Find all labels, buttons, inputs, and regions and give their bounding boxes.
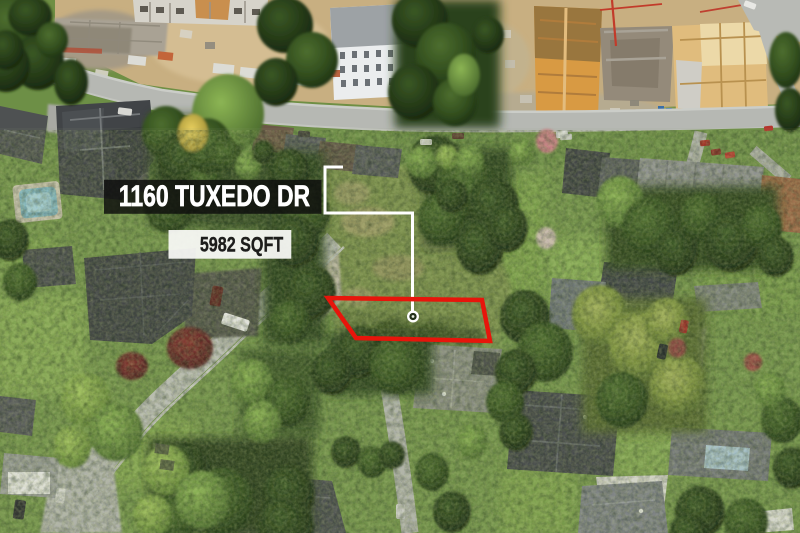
svg-text:5982 SQFT: 5982 SQFT	[200, 233, 284, 257]
svg-text:1160 TUXEDO DR: 1160 TUXEDO DR	[119, 179, 310, 213]
